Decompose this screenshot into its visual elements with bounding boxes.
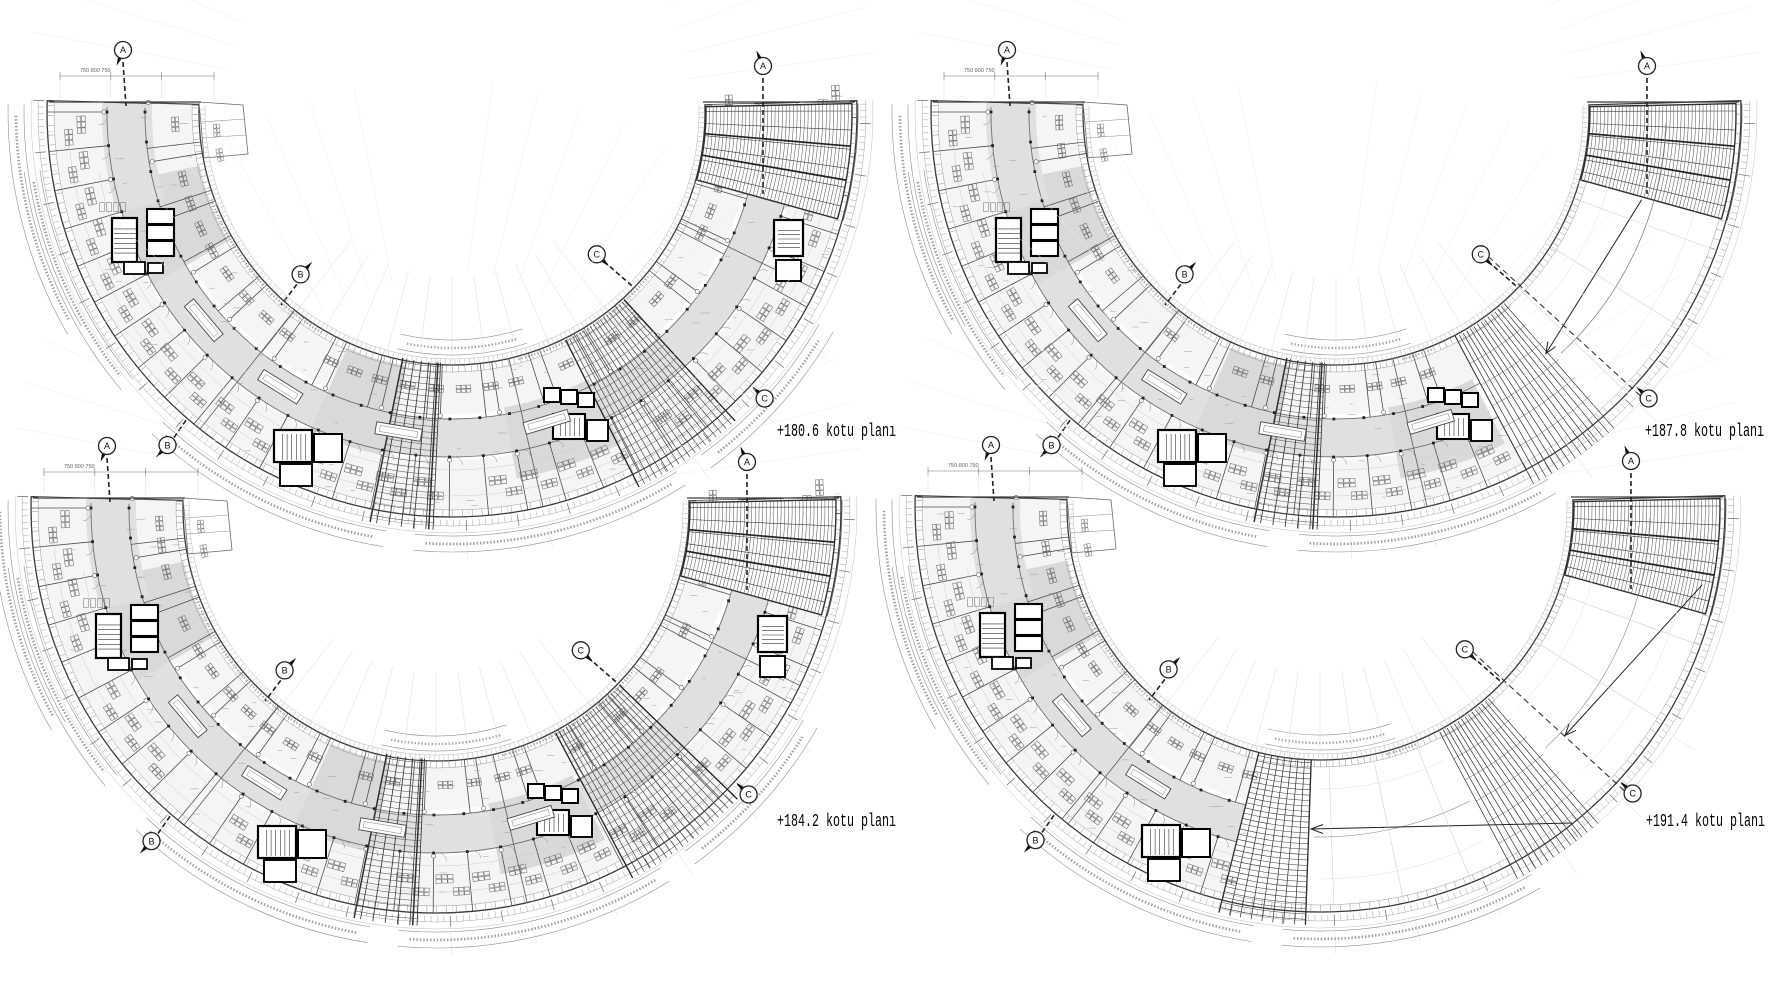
svg-text:A: A	[760, 61, 766, 71]
svg-text:A: A	[1644, 61, 1650, 71]
svg-text:A: A	[104, 441, 110, 451]
svg-text:A: A	[988, 440, 994, 450]
svg-text:C: C	[578, 646, 585, 656]
svg-text:C: C	[1629, 789, 1636, 799]
svg-text:A: A	[1004, 45, 1010, 55]
svg-text:750 800 750: 750 800 750	[964, 68, 995, 74]
svg-text:A: A	[744, 457, 750, 467]
svg-text:A: A	[1628, 456, 1634, 466]
svg-text:+187.8 kotu planı: +187.8 kotu planı	[1645, 422, 1764, 442]
svg-text:B: B	[148, 836, 154, 846]
svg-text:B: B	[164, 440, 170, 450]
svg-text:A: A	[120, 45, 126, 55]
svg-text:C: C	[1462, 645, 1469, 655]
svg-text:750 800 750: 750 800 750	[64, 464, 95, 470]
svg-text:750 800 750: 750 800 750	[80, 68, 111, 74]
svg-text:C: C	[745, 790, 752, 800]
svg-text:+180.6 kotu planı: +180.6 kotu planı	[777, 422, 896, 442]
svg-text:B: B	[298, 270, 304, 280]
svg-text:B: B	[282, 666, 288, 676]
svg-text:C: C	[1645, 394, 1652, 404]
svg-text:B: B	[1032, 835, 1038, 845]
svg-text:+191.4 kotu planı: +191.4 kotu planı	[1646, 812, 1765, 832]
svg-text:C: C	[761, 394, 768, 404]
svg-text:750 800 750: 750 800 750	[948, 463, 979, 469]
svg-text:+184.2 kotu planı: +184.2 kotu planı	[777, 812, 896, 832]
svg-text:C: C	[1478, 250, 1485, 260]
svg-text:B: B	[1048, 440, 1054, 450]
svg-text:B: B	[1182, 270, 1188, 280]
svg-text:B: B	[1166, 665, 1172, 675]
